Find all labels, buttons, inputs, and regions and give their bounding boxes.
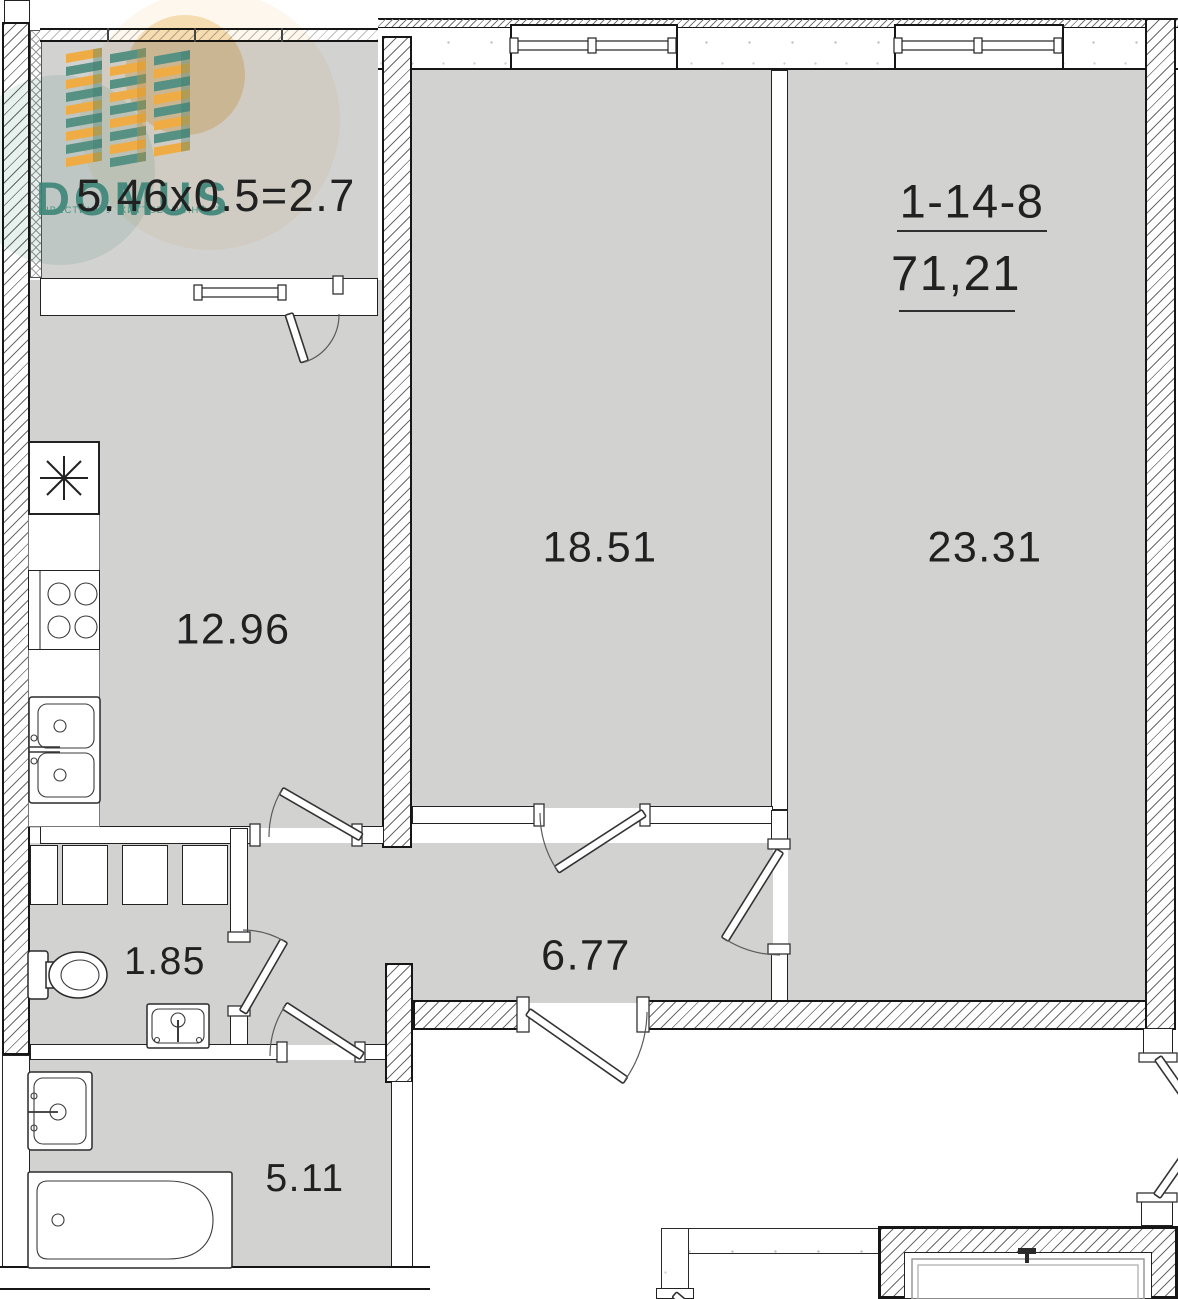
window-balcony-sill-frame <box>194 285 286 300</box>
kitchen-sink-icon <box>29 697 100 803</box>
window-bedroom-frame <box>894 38 1062 53</box>
floor-plan: DOMUS ІНВЕСТИЦІЇ У ЖИТТЄВІ ЦІННОСТІ 5.46… <box>0 0 1178 1299</box>
door-corridor-small <box>672 1292 696 1299</box>
bath-sink-icon <box>28 1072 92 1150</box>
door-living <box>540 810 646 873</box>
label-apartment-number: 1-14-8 <box>900 174 1045 229</box>
logo-buildings-icon <box>66 40 196 172</box>
door-corridor-a <box>1155 1056 1178 1103</box>
bathtub-icon <box>28 1172 232 1268</box>
apartment-area-underline <box>899 310 1015 312</box>
door-jamb-caps <box>228 276 1177 1202</box>
label-kitchen-area: 12.96 <box>175 606 290 655</box>
label-wc-area: 1.85 <box>124 940 206 984</box>
stove-icon <box>40 571 97 649</box>
label-hall-area: 6.77 <box>541 932 631 981</box>
door-kitchen <box>269 788 363 841</box>
vent-shaft-icon <box>40 456 88 500</box>
door-corridor-b <box>1154 1154 1178 1198</box>
door-balcony <box>285 313 339 363</box>
elevator-door-icon <box>912 1248 1144 1299</box>
label-bedroom-area: 23.31 <box>927 524 1042 573</box>
window-living-frame <box>510 38 676 53</box>
label-living-area: 18.51 <box>542 524 657 573</box>
apartment-number-underline <box>897 230 1047 232</box>
door-entrance <box>526 1009 647 1084</box>
toilet-icon <box>28 951 107 999</box>
label-balcony-area: 5.46x0.5=2.7 <box>76 170 355 222</box>
label-bathroom-area: 5.11 <box>265 1157 344 1201</box>
label-apartment-area: 71,21 <box>891 246 1021 302</box>
wc-sink-icon <box>147 1004 209 1048</box>
door-bedroom <box>721 849 783 955</box>
